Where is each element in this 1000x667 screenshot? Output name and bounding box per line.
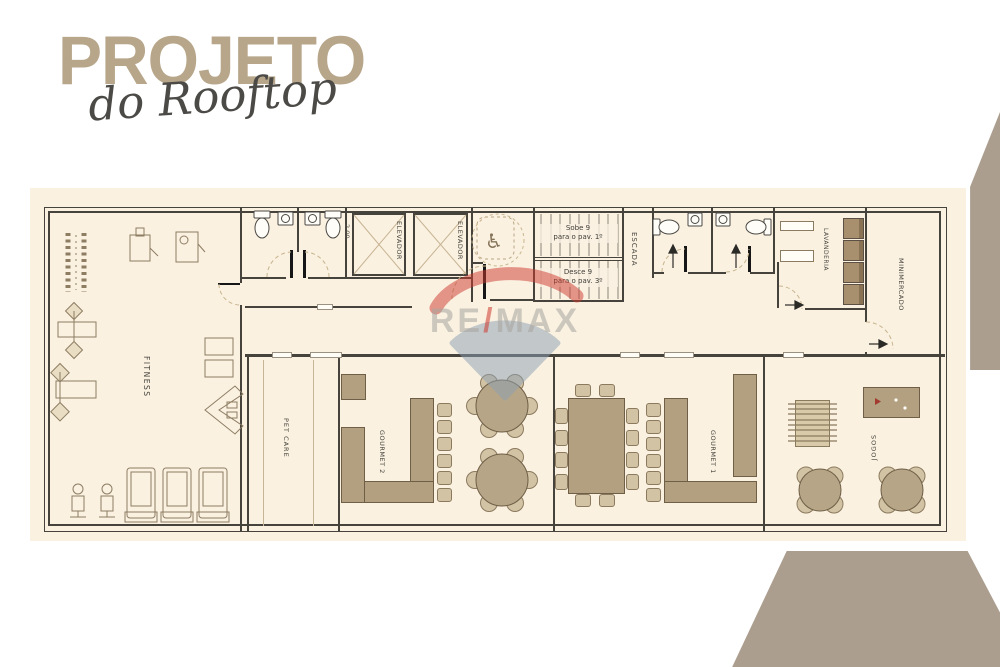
wall-segment xyxy=(622,207,624,302)
door-opening xyxy=(783,352,804,358)
stair-note-up-line2: para o pav. 1º xyxy=(538,233,618,242)
wall-segment xyxy=(345,277,471,279)
bar-chair xyxy=(437,420,452,434)
dining-chair xyxy=(626,474,639,490)
stair-landing-line xyxy=(533,260,622,261)
room-label-fitness: FITNESS xyxy=(142,356,151,397)
room-label-lavanderia: LAVANDERIA xyxy=(822,228,829,271)
door-leaf xyxy=(684,246,687,272)
wall-segment xyxy=(471,262,483,264)
wall-segment xyxy=(533,207,535,302)
room-label-gourmet2: GOURMET 2 xyxy=(378,430,386,474)
wall-segment xyxy=(694,354,783,357)
door-opening xyxy=(310,352,342,358)
gourmet1-counter-arm xyxy=(664,481,757,503)
washing-machine xyxy=(843,262,864,283)
dining-chair xyxy=(599,494,615,507)
dining-chair xyxy=(555,408,568,424)
wall-segment xyxy=(640,354,664,357)
room-label-pet-care: PET CARE xyxy=(282,418,290,458)
washing-machine xyxy=(843,240,864,261)
wall-segment xyxy=(345,207,347,278)
corner-wedge-bottom-right xyxy=(730,551,1000,667)
wall-segment xyxy=(750,272,775,274)
wall-segment xyxy=(804,354,945,357)
bar-chair xyxy=(646,471,661,485)
room-label-jogos: JOGOS xyxy=(870,434,878,460)
door-opening xyxy=(620,352,640,358)
wall-segment xyxy=(247,354,249,532)
wall-segment xyxy=(245,354,272,357)
wall-segment xyxy=(763,354,765,532)
wall-segment xyxy=(240,305,242,532)
wall-segment xyxy=(652,207,654,278)
bar-chair xyxy=(646,454,661,468)
wall-segment xyxy=(240,207,242,283)
dining-chair xyxy=(555,474,568,490)
bar-chair xyxy=(437,454,452,468)
wall-segment xyxy=(777,262,779,308)
wall-segment xyxy=(240,277,286,279)
room-label-minimercado: MINIMERCADO xyxy=(897,258,905,311)
bar-chair xyxy=(646,488,661,502)
laundry-shelf xyxy=(780,250,814,262)
bar-chair xyxy=(437,403,452,417)
door-leaf xyxy=(218,283,240,285)
door-opening xyxy=(664,352,694,358)
stair-note-down-line2: para o pav. 3º xyxy=(538,277,618,286)
dining-chair xyxy=(626,408,639,424)
stair-note-down: Desce 9 para o pav. 3º xyxy=(538,268,618,287)
room-label-gourmet1: GOURMET 1 xyxy=(709,430,717,474)
wall-segment xyxy=(865,207,867,322)
wall-segment xyxy=(342,354,620,357)
bar-chair xyxy=(437,488,452,502)
wall-segment xyxy=(688,272,726,274)
dining-chair xyxy=(555,430,568,446)
wall-segment xyxy=(245,306,317,308)
dining-chair xyxy=(575,384,591,397)
door-leaf xyxy=(483,264,486,299)
petcare-counter-line xyxy=(313,360,314,526)
wall-segment xyxy=(338,354,340,532)
wall-segment xyxy=(490,299,535,301)
dining-chair xyxy=(626,430,639,446)
dining-chair xyxy=(575,494,591,507)
bar-chair xyxy=(646,437,661,451)
bar-chair xyxy=(646,403,661,417)
foosball-table xyxy=(795,400,830,447)
wall-segment xyxy=(292,354,310,357)
stair-note-up-line1: Sobe 9 xyxy=(538,224,618,233)
room-label-escada: ESCADA xyxy=(630,232,638,267)
stair-landing-line xyxy=(533,257,622,258)
dining-chair xyxy=(599,384,615,397)
rooftop-floorplan-page: PROJETO do Rooftop xyxy=(0,0,1000,667)
wall-segment xyxy=(533,300,624,302)
door-leaf xyxy=(748,246,751,272)
billiards-table xyxy=(863,387,920,418)
gourmet1-counter-column xyxy=(733,374,757,477)
wall-segment xyxy=(711,207,713,272)
wall-segment xyxy=(805,308,867,310)
gourmet2-counter-column xyxy=(341,427,365,503)
dimension-label: 2.00 xyxy=(343,224,351,238)
wall-segment xyxy=(773,207,775,272)
door-leaf xyxy=(290,250,293,278)
bar-chair xyxy=(437,437,452,451)
dining-chair xyxy=(555,452,568,468)
bar-chair xyxy=(437,471,452,485)
wall-segment xyxy=(471,207,473,302)
corner-wedge-top-right xyxy=(966,112,1000,370)
door-opening xyxy=(317,304,333,310)
wall-segment xyxy=(333,306,412,308)
room-label-elevador-1: ELEVADOR xyxy=(395,221,403,260)
wall-segment xyxy=(308,277,347,279)
door-opening xyxy=(272,352,292,358)
gourmet2-counter-block xyxy=(341,374,366,400)
wall-segment xyxy=(297,207,299,252)
stair-note-up: Sobe 9 para o pav. 1º xyxy=(538,224,618,243)
stair-note-down-line1: Desce 9 xyxy=(538,268,618,277)
wall-segment xyxy=(652,272,664,274)
washing-machine xyxy=(843,218,864,239)
laundry-shelf xyxy=(780,221,814,231)
bar-chair xyxy=(646,420,661,434)
room-label-elevador-2: ELEVADOR xyxy=(456,221,464,260)
washing-machine xyxy=(843,284,864,305)
gourmet1-dining-table xyxy=(568,398,625,494)
petcare-counter-line xyxy=(263,360,264,526)
door-leaf xyxy=(303,250,306,278)
dining-chair xyxy=(626,452,639,468)
